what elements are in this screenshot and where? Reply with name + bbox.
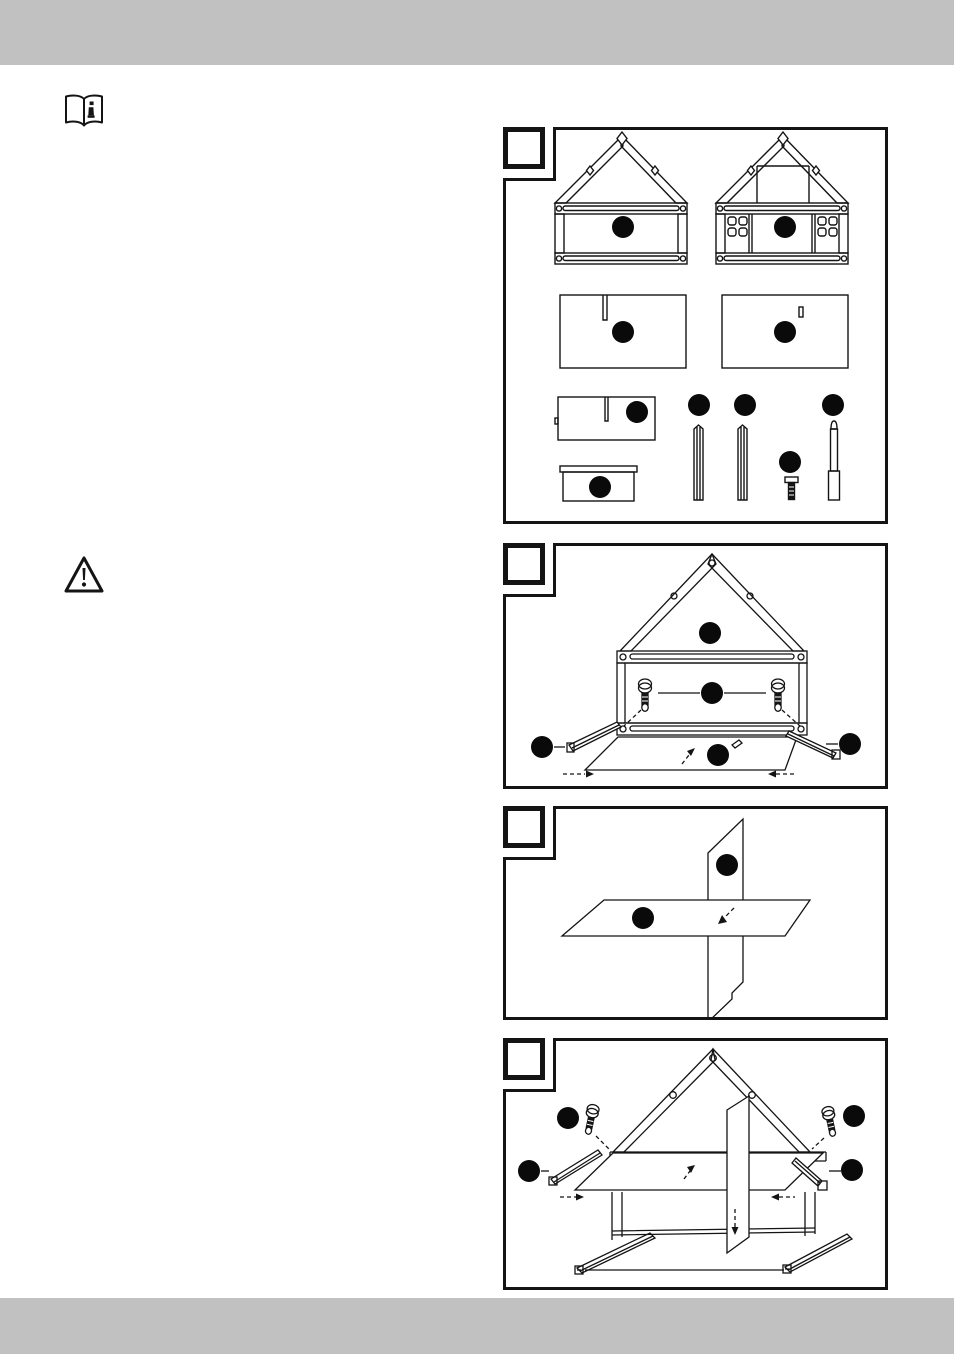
step-panel-2	[503, 543, 888, 789]
callout-circle	[774, 321, 796, 343]
top-screw-right	[821, 1105, 839, 1137]
callout-circle	[774, 216, 796, 238]
callout-circle	[518, 1160, 540, 1182]
bottom-rail-left	[575, 1233, 655, 1274]
callout-circle	[839, 733, 861, 755]
bottom-gray-bar	[0, 1298, 954, 1354]
lower-frame	[612, 1192, 815, 1240]
base-tray	[560, 466, 637, 501]
callout-circle	[822, 394, 844, 416]
divider-panel	[555, 397, 655, 440]
cam-screw-left	[639, 679, 652, 711]
shelf-insertion-figure	[506, 1041, 885, 1287]
centre-divider	[727, 1096, 749, 1253]
bottom-rail-right	[783, 1234, 852, 1273]
manual-page	[0, 0, 954, 1354]
screw-part	[779, 451, 801, 500]
callout-circle	[531, 736, 553, 758]
manual-book-icon	[62, 92, 106, 132]
cross-joint-figure	[506, 809, 885, 1017]
top-gray-bar	[0, 0, 954, 65]
cam-screw-right	[772, 679, 785, 711]
callout-circle	[688, 394, 710, 416]
warning-triangle-icon	[63, 554, 105, 596]
callout-circle	[843, 1105, 865, 1127]
callout-circle	[632, 907, 654, 929]
horizontal-board	[562, 900, 810, 936]
callout-circle	[589, 476, 611, 498]
frame-assembly-figure	[506, 546, 885, 786]
house-frame-front	[555, 132, 687, 264]
rail-stick-2	[734, 394, 756, 500]
side-panel-slotted	[560, 295, 686, 368]
tool-pen	[822, 394, 844, 500]
exclamation-mark	[82, 568, 86, 587]
step-panel-1	[503, 127, 888, 524]
parts-overview-figure	[506, 130, 885, 521]
callout-circle	[779, 451, 801, 473]
callout-circle	[699, 622, 721, 644]
callout-circle	[626, 401, 648, 423]
callout-circle	[734, 394, 756, 416]
step-panel-4	[503, 1038, 888, 1290]
roof-beams	[613, 1049, 810, 1152]
shelf-panel	[575, 1153, 823, 1190]
top-screw-left	[582, 1103, 600, 1135]
callout-circle	[707, 744, 729, 766]
rail-stick-1	[688, 394, 710, 500]
side-panel-plain	[722, 295, 848, 368]
callout-circle	[557, 1107, 579, 1129]
callout-circle	[612, 321, 634, 343]
callout-circle	[612, 216, 634, 238]
callout-circle	[701, 682, 723, 704]
callout-circle	[841, 1159, 863, 1181]
house-frame-back	[716, 132, 848, 264]
info-symbol	[88, 102, 95, 118]
callout-circle	[716, 854, 738, 876]
step-panel-3	[503, 806, 888, 1020]
